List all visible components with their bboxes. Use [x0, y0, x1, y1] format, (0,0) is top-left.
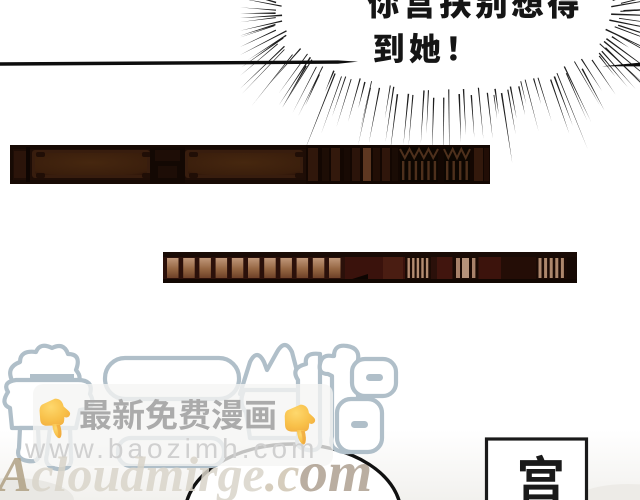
- svg-text:Acloudmirge.com: Acloudmirge.com: [0, 441, 372, 500]
